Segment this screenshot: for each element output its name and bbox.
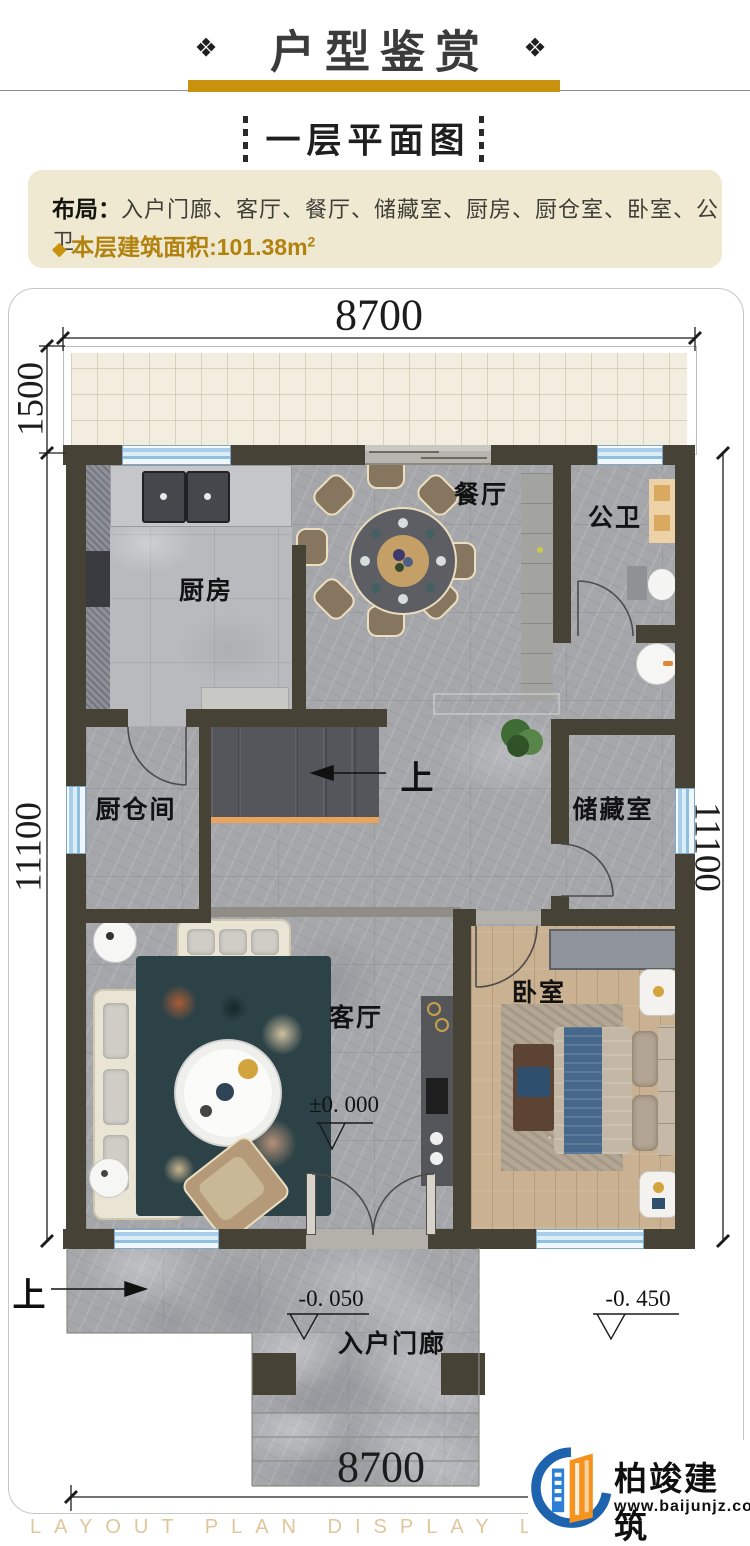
elevation-zero: ±0. 000 (309, 1092, 379, 1118)
dim-top: 8700 (335, 290, 423, 341)
elevation-minus-045: -0. 450 (605, 1286, 670, 1312)
subtitle-dash-left (243, 116, 248, 162)
floor-plan-canvas: 8700 8700 1500 11100 11100 厨房 餐厅 公卫 厨仓间 … (8, 288, 744, 1514)
layout-label: 布局： (52, 196, 121, 222)
brand-logo: 柏竣建筑 www.baijunjz.com (528, 1440, 750, 1536)
dim-left-upper: 1500 (10, 362, 53, 436)
elevation-minus-005: -0. 050 (298, 1286, 363, 1312)
room-label-bedroom: 卧室 (512, 973, 566, 1009)
porch-up-label: 上 (13, 1268, 46, 1316)
brand-website: www.baijunjz.com (614, 1498, 750, 1516)
brand-logo-icon (530, 1444, 612, 1534)
floor-area-text: 本层建筑面积:101.38m2 (71, 234, 315, 260)
gold-underline-bar (188, 80, 560, 92)
room-label-storage: 储藏室 (572, 790, 653, 826)
room-label-pantry: 厨仓间 (95, 790, 176, 826)
ornament-left-icon: ❖ (194, 33, 217, 64)
floor-subtitle: 一层平面图 (265, 113, 470, 164)
subtitle-dash-right (479, 116, 484, 162)
poster-page: ❖ 户型鉴赏 ❖ 一层平面图 布局：入户门廊、客厅、餐厅、储藏室、厨房、厨仓室、… (0, 0, 750, 1546)
room-label-dining: 餐厅 (454, 475, 508, 511)
area-superscript: 2 (308, 233, 316, 249)
page-title: 户型鉴赏 (270, 16, 490, 81)
room-label-bathroom: 公卫 (588, 498, 642, 534)
ornament-right-icon: ❖ (523, 33, 546, 64)
dim-left: 11100 (8, 802, 51, 892)
dim-bottom: 8700 (337, 1442, 425, 1493)
dim-right: 11100 (686, 802, 729, 892)
stairs-up-label: 上 (401, 751, 434, 799)
layout-info-box: 布局：入户门廊、客厅、餐厅、储藏室、厨房、厨仓室、卧室、公卫 ◆ 本层建筑面积:… (28, 170, 722, 268)
room-label-living: 客厅 (329, 998, 383, 1034)
area-bullet-icon: ◆ (52, 239, 67, 260)
room-label-porch: 入户门廊 (338, 1324, 446, 1360)
room-label-kitchen: 厨房 (179, 571, 233, 607)
